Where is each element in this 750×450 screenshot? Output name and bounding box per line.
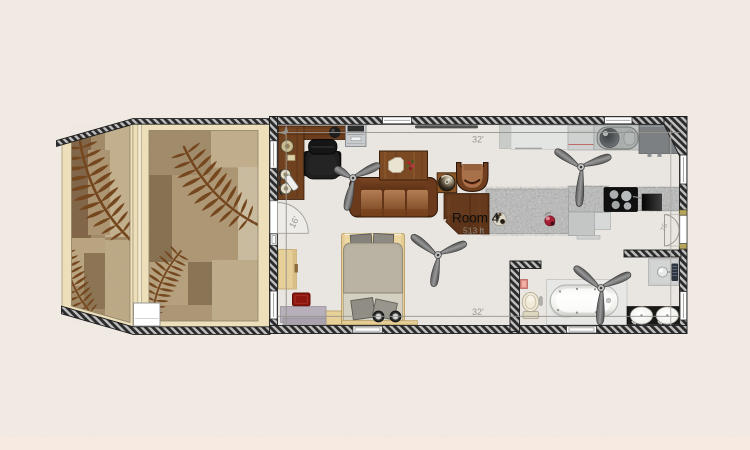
svg-text:Room 4: Room 4	[452, 211, 500, 226]
svg-text:513 ft: 513 ft	[463, 226, 485, 236]
svg-text:32': 32'	[472, 307, 484, 317]
svg-text:32': 32'	[472, 135, 484, 145]
